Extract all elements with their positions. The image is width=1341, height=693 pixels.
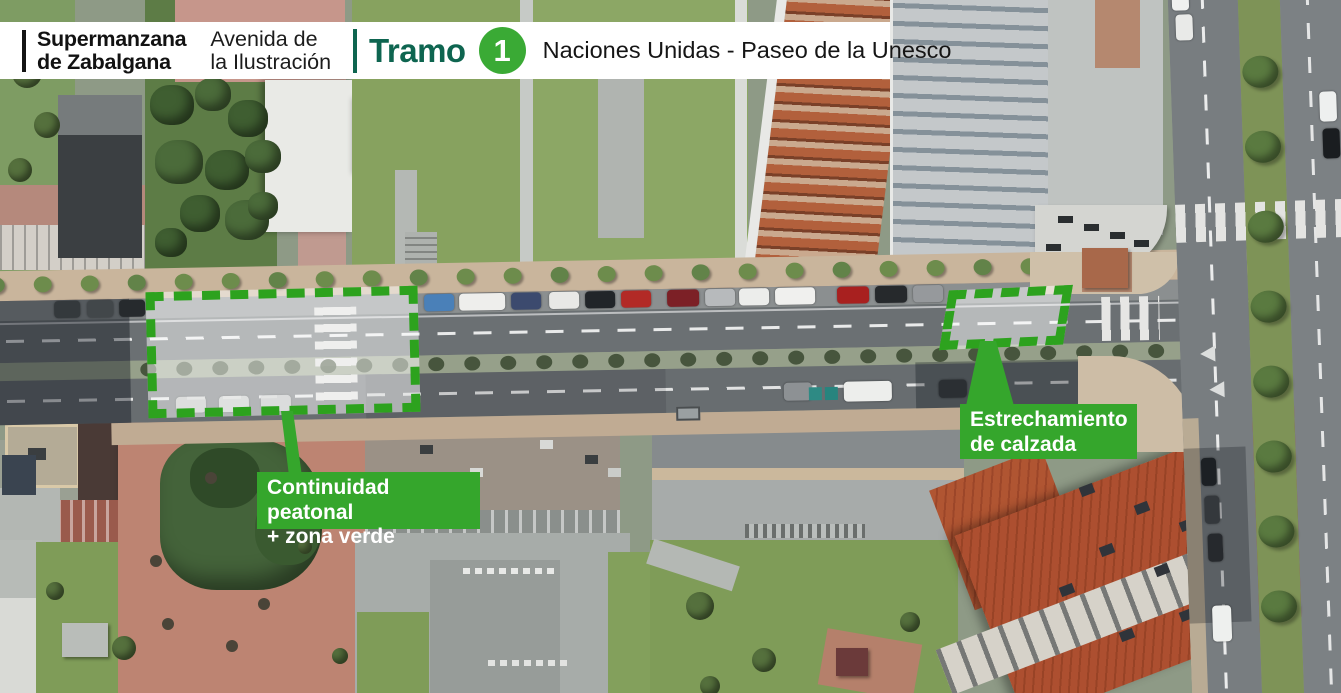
yield-marking [1209,381,1225,398]
white-building-corner [0,598,40,693]
stairs-wide [745,524,865,538]
tree [228,100,268,137]
plaza-tree [150,555,162,567]
parked-vehicle [844,381,892,402]
street-name-line2: la Ilustración [210,51,331,74]
waste-bin [825,387,838,400]
bench-row [463,568,555,574]
label-line: + zona verde [267,525,470,550]
parked-car [1319,91,1337,122]
tree [332,648,348,664]
parked-vehicle [784,382,812,401]
project-title: Supermanzana de Zabalgana [37,28,186,74]
tree [205,150,249,190]
brick-platform [1095,0,1140,68]
highlight-pedestrian-continuity [146,286,421,419]
concrete-pad [0,488,60,544]
parked-car [119,300,145,317]
roof-object [420,445,433,454]
tree [150,85,194,125]
lawn-patch [357,612,429,693]
tree [112,636,136,660]
tree [8,158,32,182]
highlight-road-narrowing [939,285,1073,350]
tree [34,112,60,138]
tramo-number-badge: 1 [479,27,526,74]
divider-teal [353,29,357,73]
label-line: de calzada [970,433,1127,458]
parked-car [54,301,80,318]
label-line: Continuidad peatonal [267,476,470,525]
parked-car [511,292,541,310]
tree [752,648,776,672]
parked-car [459,293,505,311]
label-road-narrowing: Estrechamiento de calzada [960,404,1137,459]
parked-car [621,290,651,308]
parked-car [1322,128,1340,159]
tree [46,582,64,600]
parked-van [1212,605,1232,642]
parked-car [775,287,815,305]
label-pedestrian-continuity: Continuidad peatonal + zona verde [257,472,480,529]
roof-object [608,468,621,477]
project-title-line1: Supermanzana [37,28,186,51]
yield-marking [1200,346,1216,363]
bush [190,448,260,508]
title-bar: Supermanzana de Zabalgana Avenida de la … [0,22,890,79]
parked-car [875,286,907,304]
waste-bin [809,387,822,400]
tree [900,612,920,632]
parked-car [1201,458,1217,487]
street-name: Avenida de la Ilustración [210,28,331,74]
section-label: Tramo [369,32,466,70]
parked-car [1171,0,1189,11]
bench-row [488,660,568,666]
tree [248,192,278,220]
plaza-tree [205,472,217,484]
tree [155,228,187,257]
tree [700,676,720,693]
parked-car [667,289,699,307]
street-name-line1: Avenida de [210,28,331,51]
plaza-tree [226,640,238,652]
parked-car [87,300,113,317]
parked-vehicle [939,379,967,398]
bus-shelter [676,406,700,420]
parked-car [424,294,454,312]
tree [195,78,231,111]
low-wall [652,468,964,480]
roof-object [540,440,553,449]
roof-object [585,455,598,464]
parked-car [1204,495,1220,524]
street-naciones-unidas [1167,0,1341,693]
label-line: Estrechamiento [970,408,1127,433]
tree [155,140,203,184]
pavement-dark [430,560,560,693]
small-shed [62,623,108,657]
plaza-tree [162,618,174,630]
plaza-tree [258,598,270,610]
parked-car [837,286,869,304]
parked-car [913,285,943,303]
dark-red-shed [836,648,868,676]
parked-car [549,292,579,310]
parked-car [1207,533,1223,562]
parked-car [585,291,615,309]
parking-area [652,430,964,470]
parked-car [705,289,735,307]
solar-panels [2,455,36,495]
divider-black [22,30,26,72]
section-range: Naciones Unidas - Paseo de la Unesco [543,37,952,64]
tree [686,592,714,620]
project-title-line2: de Zabalgana [37,51,186,74]
tree [180,195,220,232]
parked-car [739,288,769,306]
slide: Continuidad peatonal + zona verde Estrec… [0,0,1341,693]
parked-car [1175,14,1193,41]
zebra-crossing [1101,296,1160,341]
dark-building-roof [58,95,142,135]
tree [245,140,281,173]
lawn-path [598,70,644,238]
